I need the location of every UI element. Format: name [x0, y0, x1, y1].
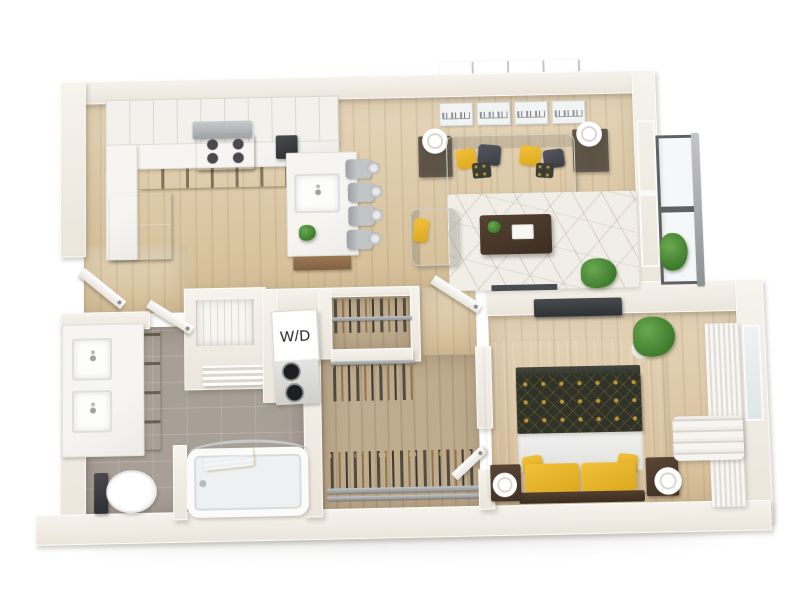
vanity-sink-2: [72, 390, 112, 433]
art-panel-1: [439, 102, 473, 126]
wall-closet-upper-top: [330, 286, 414, 298]
bar-stool-1: [345, 159, 371, 179]
island-base: [293, 256, 351, 271]
bedroom-curtain-rolls: [672, 415, 744, 461]
sofa-pillow-pattern-2: [535, 163, 554, 179]
washer-dryer-label: W/D: [280, 327, 312, 346]
coffee-table-tray: [512, 224, 534, 239]
armchair-pillow: [412, 218, 430, 243]
wall-left-upper: [60, 81, 86, 257]
floor-plan-stage: W/D: [0, 0, 800, 600]
art-panel-4: [551, 100, 585, 124]
tv: [534, 297, 623, 317]
art-panel-3: [514, 101, 548, 125]
bed-duvet: [516, 373, 643, 434]
bar-stool-2: [348, 182, 374, 202]
bed-pillow-right: [581, 462, 637, 492]
island-sink: [294, 173, 340, 213]
floor-plan: W/D: [0, 0, 800, 600]
wall-tub-partition: [173, 445, 188, 521]
wall-art-panels: [439, 100, 586, 126]
entry-closet-shelf: [196, 299, 254, 346]
closet-mid-clothes: [333, 364, 414, 402]
cooktop: [197, 134, 255, 170]
refrigerator: [110, 192, 172, 260]
bar-stool-3: [348, 206, 374, 226]
vanity-sink-1: [72, 338, 112, 381]
bed-pillow-left: [524, 463, 579, 493]
washer-dryer-cabinet: W/D: [271, 309, 320, 363]
vanity-drawers: [144, 329, 161, 450]
bar-stool-4: [347, 229, 373, 249]
sofa-pillow-pattern-1: [472, 162, 492, 179]
entry-shelf-ridges: [202, 365, 262, 386]
lower-cabinets: [139, 166, 300, 189]
art-panel-2: [477, 102, 511, 126]
